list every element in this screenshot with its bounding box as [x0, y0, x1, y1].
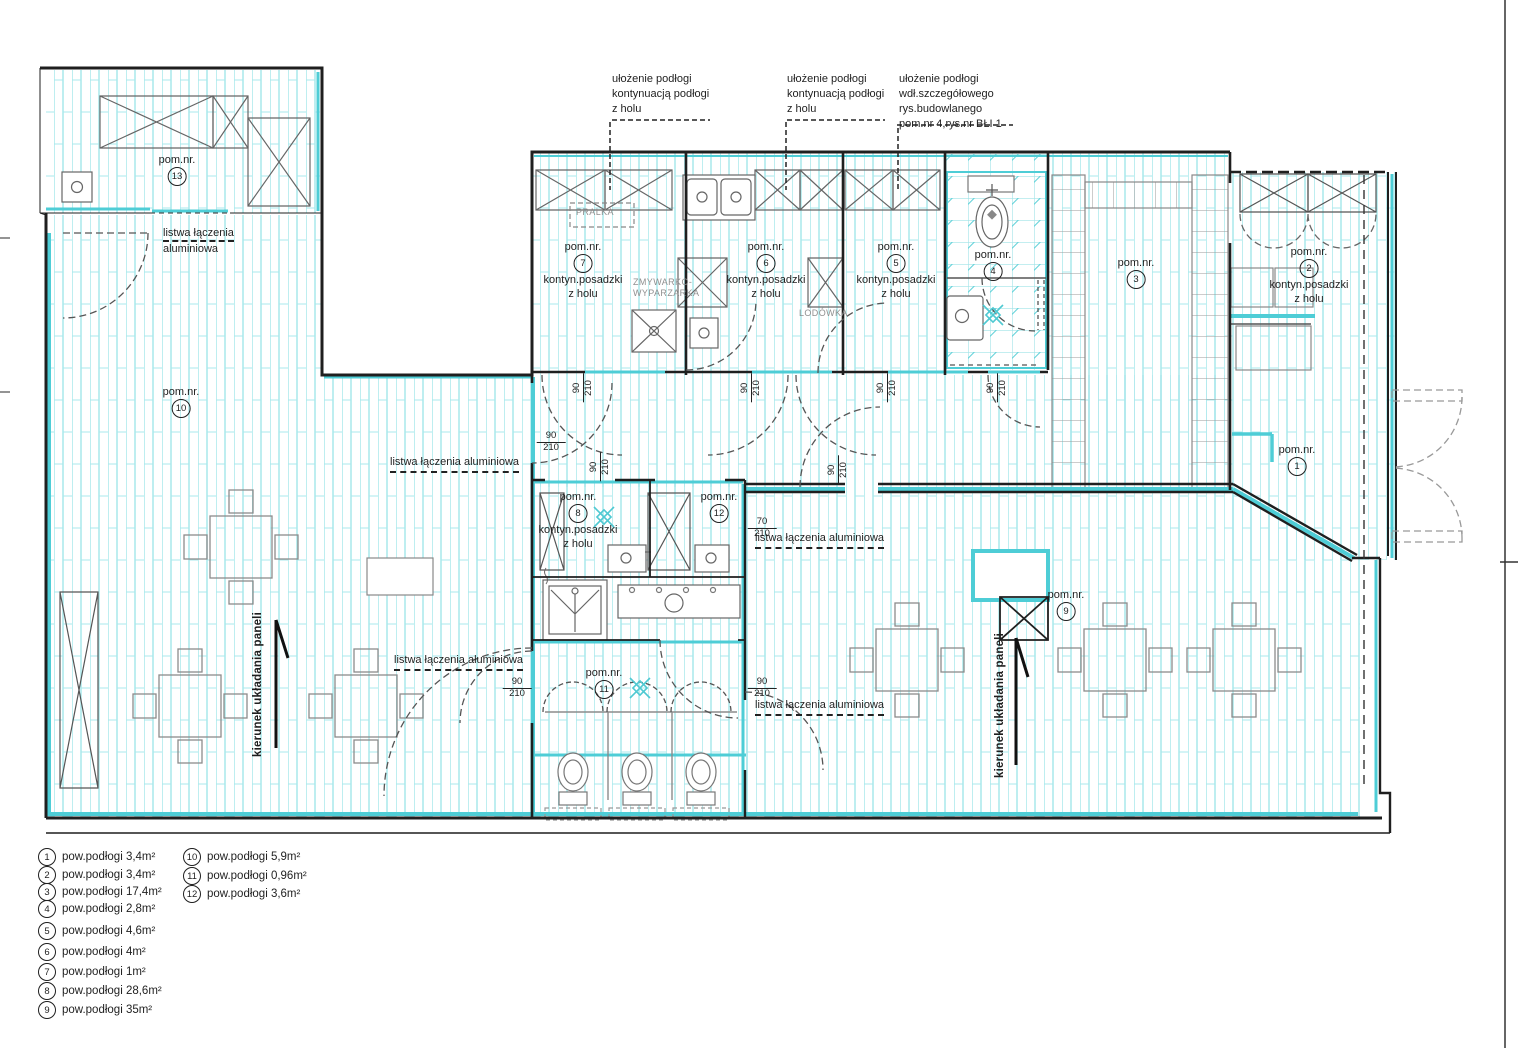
room-label-11: pom.nr. 11 [586, 666, 623, 699]
room-label-12: pom.nr. 12 [701, 490, 738, 523]
room-label-8: pom.nr. 8 kontyn.posadzki z holu [539, 490, 618, 551]
legend-item-10: 10 pow.podłogi 5,9m² [183, 848, 300, 866]
legend-item-1: 1 pow.podłogi 3,4m² [38, 848, 155, 866]
legend-item-3: 3 pow.podłogi 17,4m² [38, 883, 162, 901]
fridge-label: LODÓWKA [799, 308, 848, 319]
room-label-4: pom.nr. 4 [975, 248, 1012, 281]
room-label-3: pom.nr. 3 [1118, 256, 1155, 289]
washer-label: PRALKA [576, 207, 614, 218]
room-label-1: pom.nr. 1 [1279, 443, 1316, 476]
dim-90-210-room5-door: 90 210 [876, 374, 898, 403]
dishwasher-label: ZMYWARKO- WYPARZARKA [633, 277, 699, 299]
floor-plan-page: ułożenie podłogi kontynuacją podłogi z h… [0, 0, 1536, 1048]
room-label-13: pom.nr. 13 [159, 153, 196, 186]
legend-item-9: 9 pow.podłogi 35m² [38, 1001, 152, 1019]
room-label-9: pom.nr. 9 [1048, 588, 1085, 621]
dim-90-210-room11-left: 90 210 [503, 677, 532, 699]
panel-direction-label-left: kierunek układania paneli [252, 612, 264, 757]
top-note-1: ułożenie podłogi kontynuacją podłogi z h… [612, 72, 709, 117]
legend-item-11: 11 pow.podłogi 0,96m² [183, 867, 307, 885]
legend-item-5: 5 pow.podłogi 4,6m² [38, 922, 155, 940]
legend-item-2: 2 pow.podłogi 3,4m² [38, 866, 155, 884]
dim-90-210-room7-door: 90 210 [572, 374, 594, 403]
listwa-note-bottom-left: listwa łączenia aluminiowa [394, 653, 523, 671]
dim-70-210-room12: 70 210 [748, 517, 777, 539]
listwa-note-mid-left: listwa łączenia aluminiowa [390, 455, 519, 473]
dim-90-210-hall-mid: 90 210 [589, 453, 611, 482]
top-note-2: ułożenie podłogi kontynuacją podłogi z h… [787, 72, 884, 117]
dim-90-210-hall-left: 90 210 [537, 431, 566, 453]
room-label-6: pom.nr. 6 kontyn.posadzki z holu [727, 240, 806, 301]
dim-90-210-room6-door: 90 210 [740, 374, 762, 403]
legend-item-8: 8 pow.podłogi 28,6m² [38, 982, 162, 1000]
panel-direction-label-right: kierunek układania paneli [994, 633, 1006, 778]
dim-90-210-room11-right: 90 210 [748, 677, 777, 699]
legend-item-6: 6 pow.podłogi 4m² [38, 943, 146, 961]
legend-item-7: 7 pow.podłogi 1m² [38, 963, 146, 981]
room-label-2: pom.nr. 2 kontyn.posadzki z holu [1270, 245, 1349, 306]
room-label-7: pom.nr. 7 kontyn.posadzki z holu [544, 240, 623, 301]
listwa-note-bottom-right: listwa łączenia aluminiowa [755, 698, 884, 716]
room-label-5: pom.nr. 5 kontyn.posadzki z holu [857, 240, 936, 301]
listwa-note-room13: listwa łączenia aluminiowa [163, 226, 234, 256]
room-label-10: pom.nr. 10 [163, 385, 200, 418]
dim-90-210-room4-door: 90 210 [986, 374, 1008, 403]
dim-90-210-hall-right: 90 210 [827, 456, 849, 485]
top-note-3: ułożenie podłogi wdł.szczegółowego rys.b… [899, 72, 1002, 132]
legend-item-4: 4 pow.podłogi 2,8m² [38, 900, 155, 918]
legend-item-12: 12 pow.podłogi 3,6m² [183, 885, 300, 903]
